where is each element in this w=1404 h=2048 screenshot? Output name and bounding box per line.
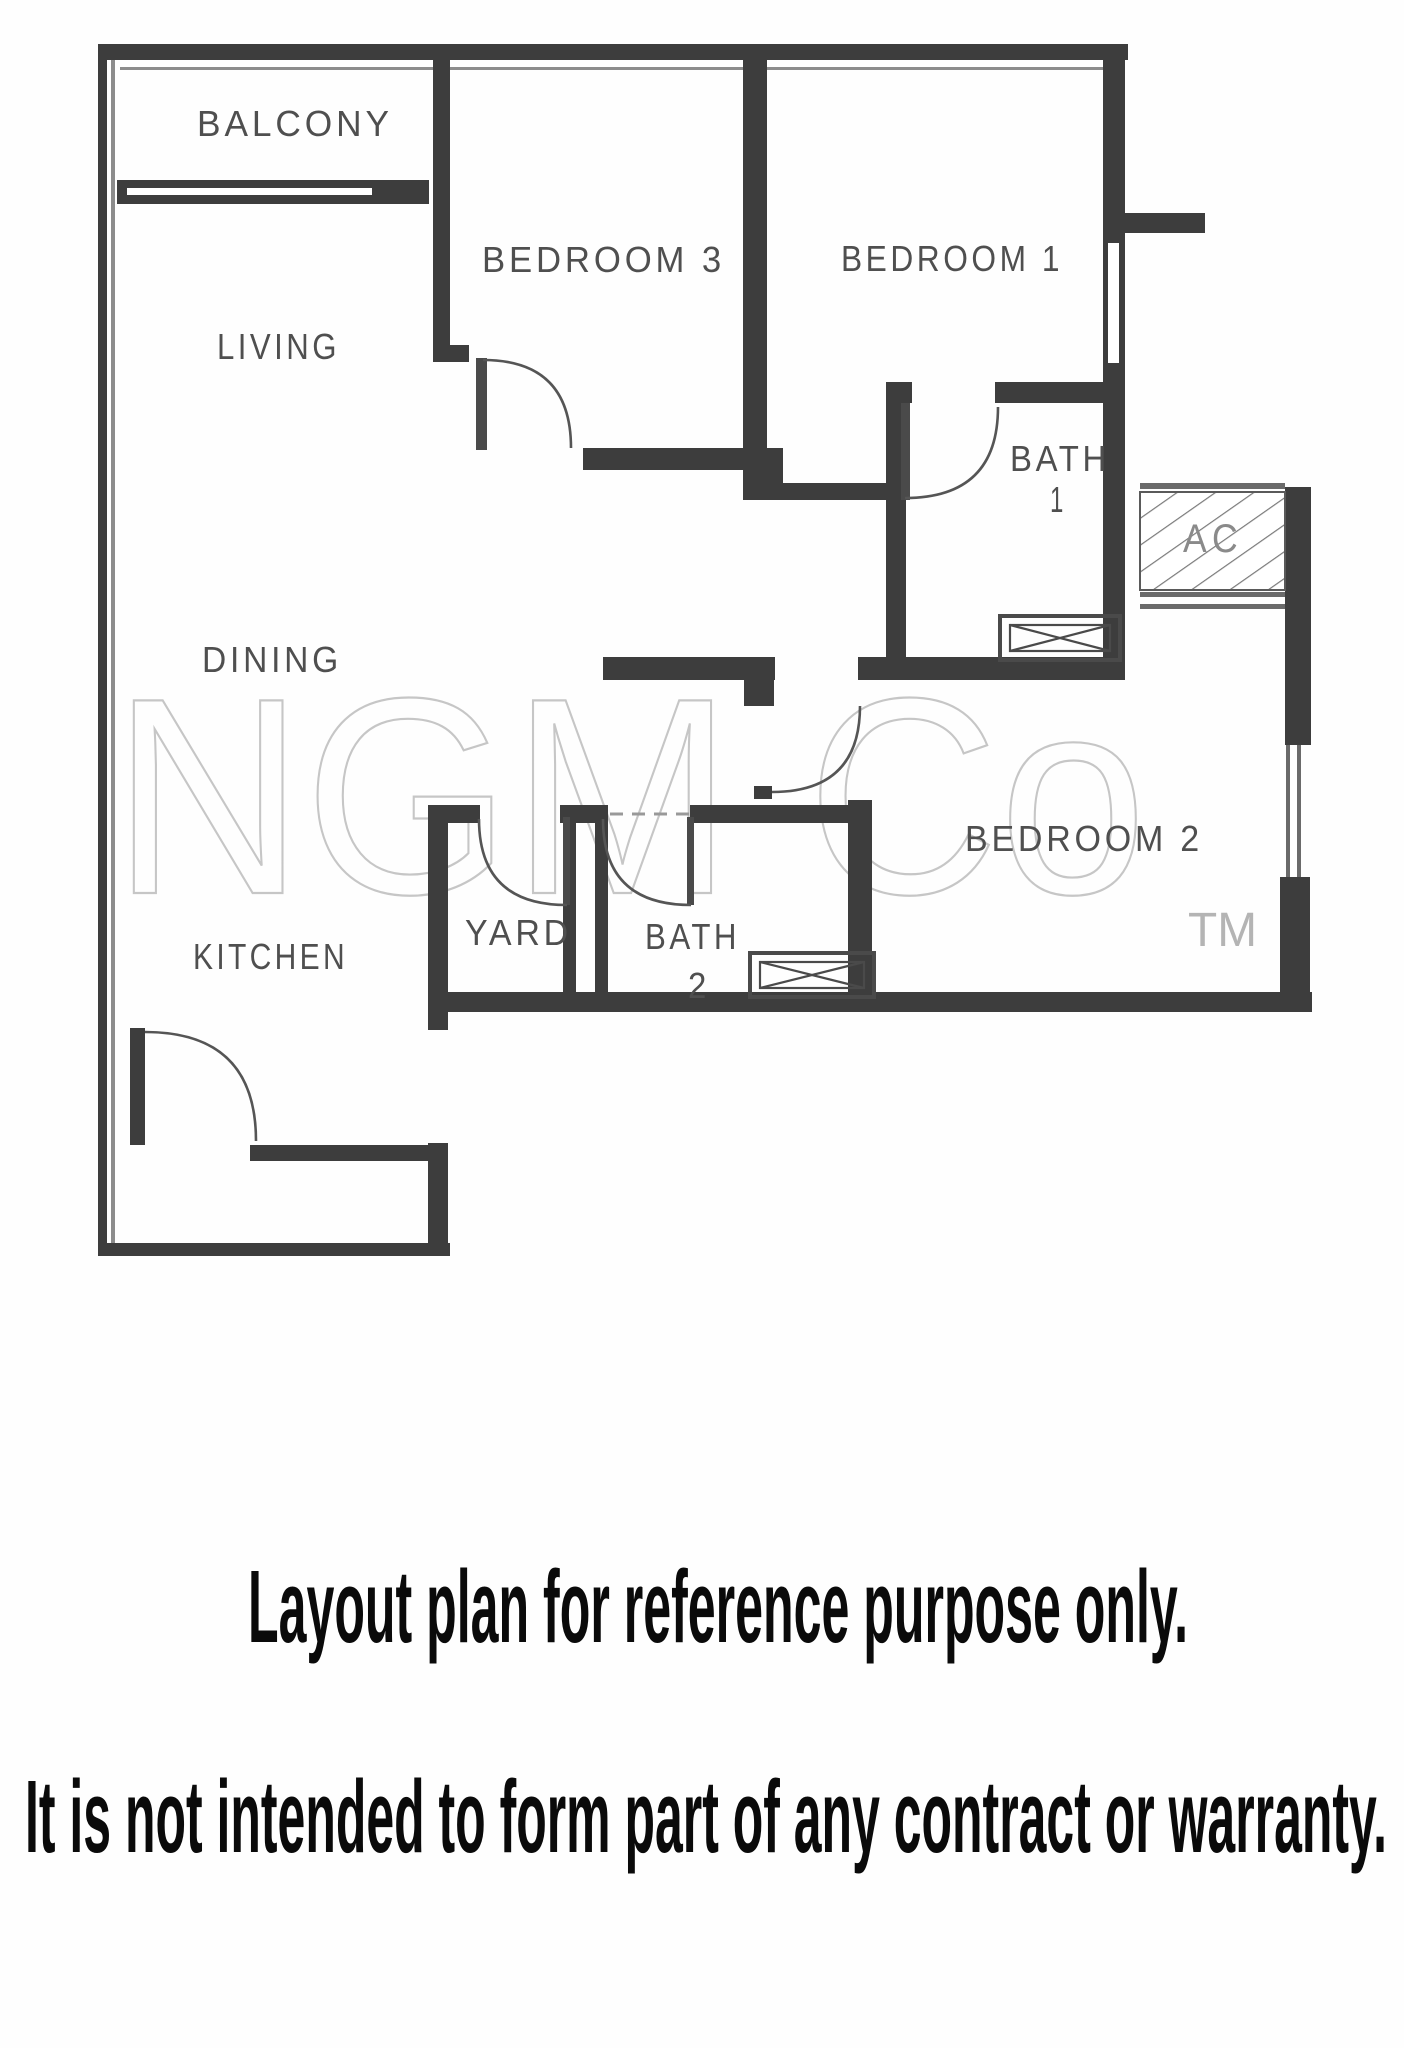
ledge-bedroom1-right — [1125, 213, 1205, 233]
wall-entry-right — [428, 1143, 448, 1256]
window-bedroom1-right — [1108, 243, 1119, 363]
living-label: LIVING — [217, 326, 340, 367]
wall-living-bedroom3 — [433, 44, 450, 362]
wall-entry-top — [250, 1145, 428, 1161]
bath1-number: 1 — [1050, 479, 1066, 520]
wall-right-lower — [1280, 877, 1310, 1012]
bath2-door-leaf — [687, 817, 694, 905]
wall-bath2-top — [690, 805, 848, 823]
kitchen-label: KITCHEN — [193, 936, 348, 977]
dining-label: DINING — [202, 639, 342, 680]
ac-label: AC — [1183, 517, 1243, 561]
wall-bedroom3-stub — [433, 345, 469, 362]
wall-bath1-bottom-left — [603, 657, 775, 680]
yard-label: YARD — [465, 912, 572, 953]
caption-line1: Layout plan for reference purpose only. — [248, 1549, 1188, 1664]
captions: Layout plan for reference purpose only. … — [25, 1549, 1387, 1874]
yard-door-leaf — [563, 817, 570, 905]
entry-door-jamb — [130, 1028, 145, 1145]
wall-bedroom3-bedroom1 — [743, 60, 767, 450]
wall-yard-bath2-right-strip — [595, 805, 608, 992]
wall-right-ac-bar — [1285, 487, 1311, 745]
bedroom2-door-stub — [754, 786, 772, 799]
balcony-sliding-window-gap — [127, 188, 372, 195]
wall-bottom-entry — [98, 1243, 450, 1256]
watermark-tm-text: TM — [1188, 904, 1257, 957]
ac-top-line — [1140, 483, 1285, 489]
floor-plan-canvas: NGM Co TM — [0, 0, 1404, 2048]
watermark: NGM Co TM — [112, 641, 1257, 957]
wall-bath1-top-right — [995, 382, 1125, 403]
bath1-door-leaf — [901, 403, 910, 500]
window-right-inner — [1297, 745, 1301, 877]
bedroom2-label: BEDROOM 2 — [965, 818, 1203, 859]
bedroom3-label: BEDROOM 3 — [482, 239, 725, 280]
bedroom2-door-notch — [744, 678, 774, 706]
floor-plan-page: NGM Co TM — [0, 0, 1404, 2048]
wall-left — [98, 44, 107, 1256]
bath1-door-arc — [905, 407, 998, 498]
wall-yard-top-left — [428, 805, 480, 823]
bedroom3-door-arc — [483, 360, 571, 448]
window-right-outer — [1286, 745, 1290, 877]
balcony-label: BALCONY — [197, 103, 393, 144]
wall-kitchen-right — [428, 805, 448, 1030]
entry-door-arc — [145, 1032, 256, 1141]
wall-top — [98, 44, 1128, 60]
bath2-label: BATH — [645, 916, 740, 957]
wall-left-inner-line — [111, 60, 115, 1243]
wall-bath1-top-left — [886, 382, 912, 403]
bedroom3-door-leaf — [476, 358, 487, 450]
bath2-number: 2 — [688, 965, 710, 1006]
wall-right-bedroom1-bath1 — [1103, 60, 1125, 680]
wall-bedroom3-bottom — [583, 448, 743, 470]
ac-sill-line-2 — [1140, 604, 1285, 609]
window-line-top — [120, 67, 1105, 70]
caption-line2: It is not intended to form part of any c… — [25, 1759, 1387, 1874]
watermark-text: NGM Co — [112, 641, 1147, 953]
bedroom1-label: BEDROOM 1 — [841, 238, 1063, 279]
wall-corridor — [767, 483, 886, 500]
ac-sill-line-1 — [1140, 592, 1285, 597]
bath1-label: BATH — [1010, 438, 1110, 479]
balcony-wall — [117, 180, 429, 204]
